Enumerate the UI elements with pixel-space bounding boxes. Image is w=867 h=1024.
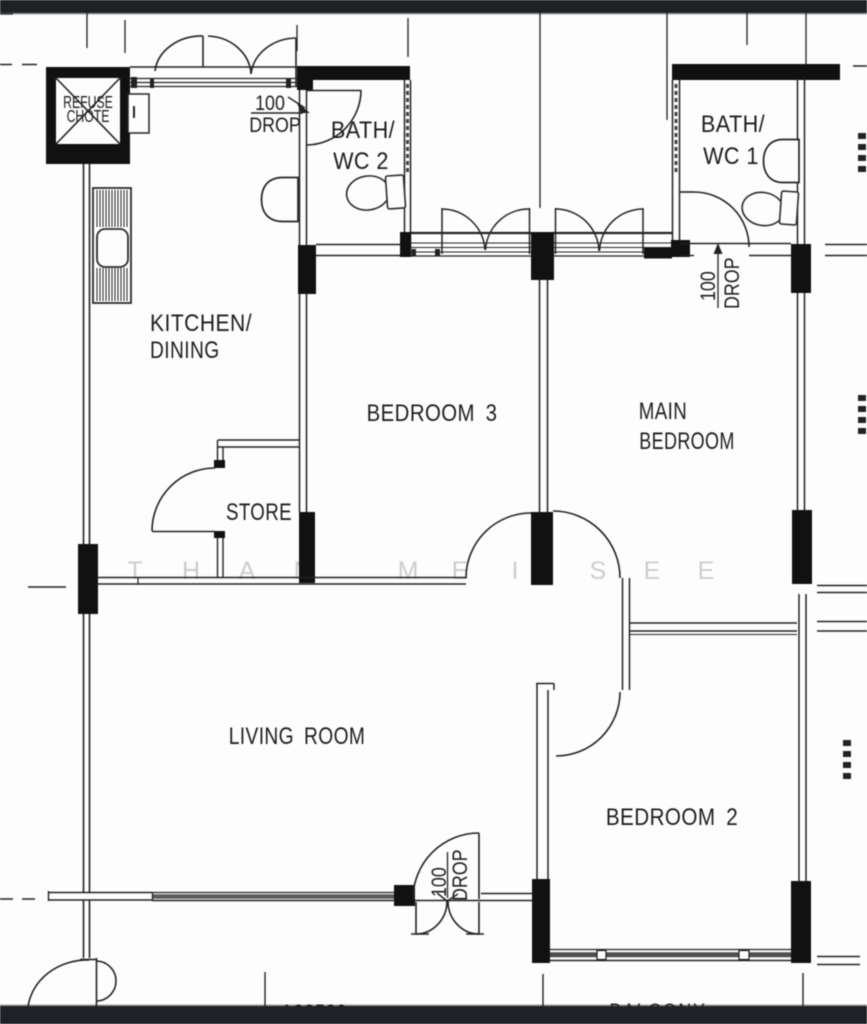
svg-text:KITCHEN/: KITCHEN/ bbox=[150, 310, 252, 337]
svg-text:DROP: DROP bbox=[249, 114, 301, 138]
svg-text:S: S bbox=[590, 557, 607, 585]
svg-text:BEDROOM: BEDROOM bbox=[639, 429, 735, 455]
svg-text:DINING: DINING bbox=[150, 336, 220, 364]
svg-text:BATH/: BATH/ bbox=[701, 110, 765, 137]
svg-text:WC 1: WC 1 bbox=[703, 142, 759, 169]
svg-text:BEDROOM 2: BEDROOM 2 bbox=[606, 804, 738, 831]
svg-text:LIVING ROOM: LIVING ROOM bbox=[229, 722, 366, 750]
svg-text:E: E bbox=[698, 557, 715, 585]
svg-text:H: H bbox=[182, 557, 200, 585]
svg-text:DROP: DROP bbox=[449, 849, 473, 901]
svg-text:100: 100 bbox=[255, 92, 285, 116]
svg-text:M: M bbox=[398, 557, 419, 585]
svg-text:100: 100 bbox=[697, 271, 721, 301]
svg-text:MAIN: MAIN bbox=[639, 398, 687, 425]
svg-text:E: E bbox=[644, 557, 661, 585]
svg-text:T: T bbox=[127, 557, 142, 585]
svg-text:DROP: DROP bbox=[721, 257, 745, 309]
svg-text:WC 2: WC 2 bbox=[333, 147, 389, 174]
svg-text:STORE: STORE bbox=[226, 499, 292, 526]
svg-text:I: I bbox=[512, 557, 519, 585]
svg-text:BATH/: BATH/ bbox=[331, 116, 395, 143]
svg-text:A: A bbox=[239, 557, 256, 585]
svg-text:CHOTE: CHOTE bbox=[67, 107, 110, 127]
svg-text:BEDROOM 3: BEDROOM 3 bbox=[367, 399, 498, 426]
